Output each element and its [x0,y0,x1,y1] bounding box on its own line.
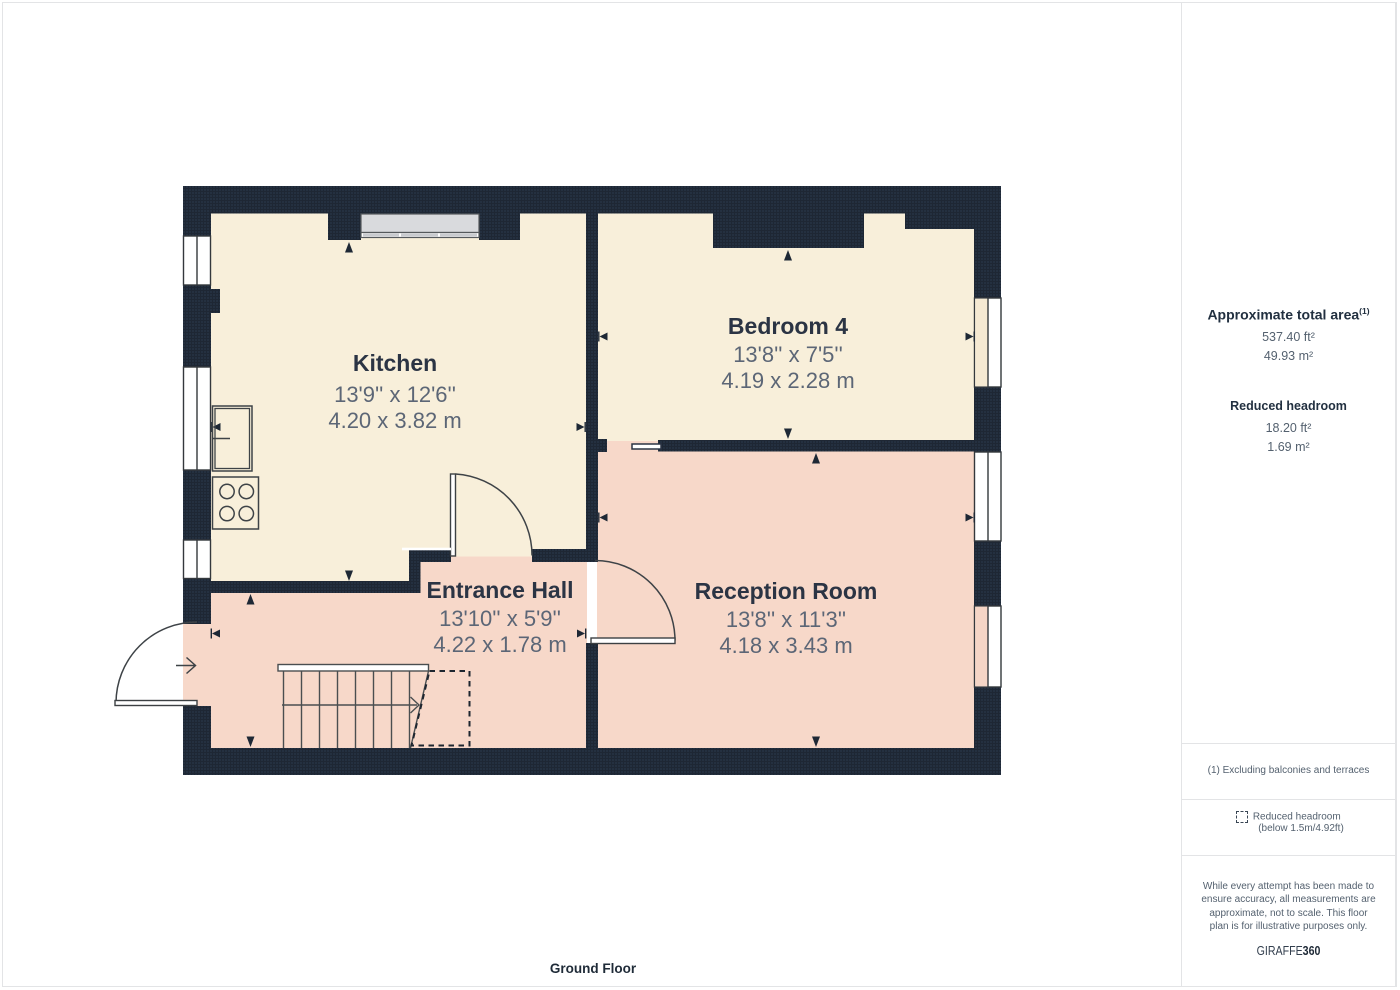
svg-text:Entrance Hall: Entrance Hall [427,577,574,603]
svg-text:13'8'' x 7'5'': 13'8'' x 7'5'' [733,342,843,367]
svg-text:Bedroom 4: Bedroom 4 [728,313,848,339]
svg-text:Ground Floor: Ground Floor [550,961,637,976]
svg-text:4.18 x 3.43 m: 4.18 x 3.43 m [719,633,852,658]
svg-text:Kitchen: Kitchen [353,350,437,376]
svg-text:13'10'' x 5'9'': 13'10'' x 5'9'' [439,606,561,631]
svg-text:4.19 x 2.28 m: 4.19 x 2.28 m [721,368,854,393]
svg-text:Reception Room: Reception Room [695,578,878,604]
svg-text:4.20 x 3.82 m: 4.20 x 3.82 m [328,408,461,433]
svg-text:13'8'' x 11'3'': 13'8'' x 11'3'' [726,607,846,632]
svg-text:4.22 x 1.78 m: 4.22 x 1.78 m [433,632,566,657]
svg-text:13'9'' x 12'6'': 13'9'' x 12'6'' [334,382,456,407]
